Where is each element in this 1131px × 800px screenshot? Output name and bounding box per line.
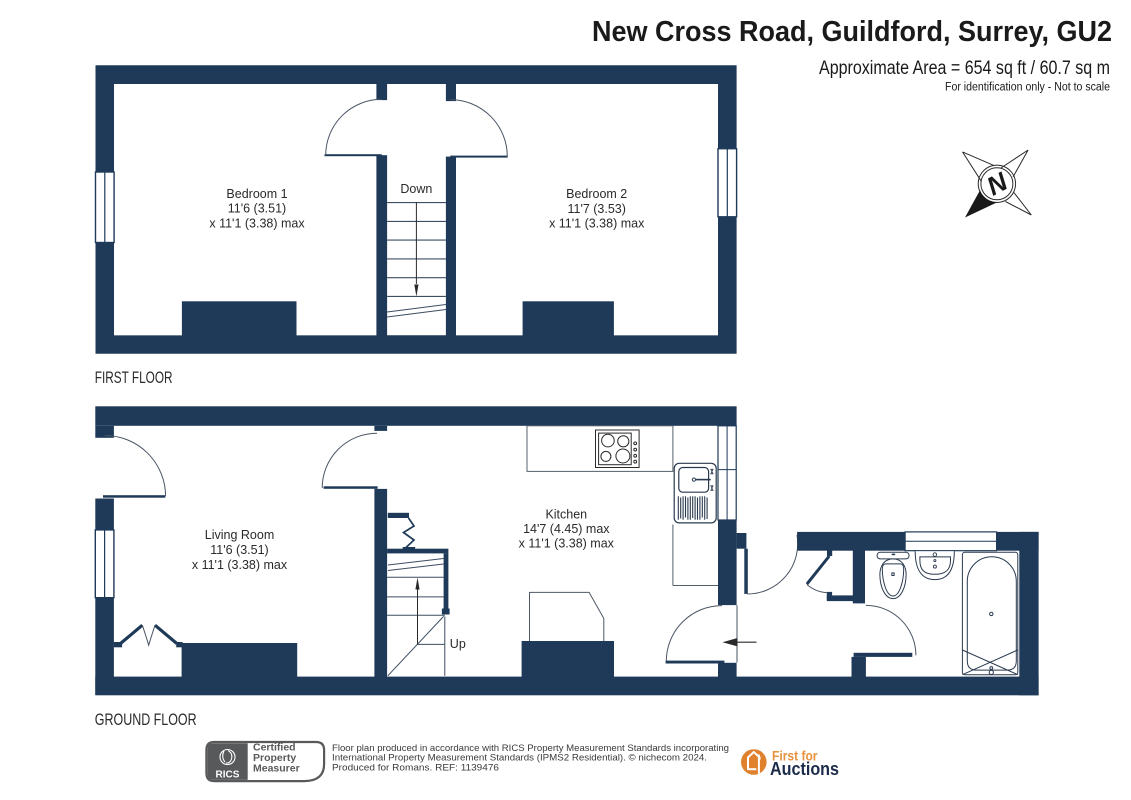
svg-text:x 11'1 (3.38) max: x 11'1 (3.38) max	[519, 537, 615, 551]
svg-text:RICS: RICS	[216, 770, 240, 781]
svg-text:Living Room: Living Room	[205, 528, 274, 542]
svg-text:Down: Down	[400, 182, 432, 196]
svg-text:Auctions: Auctions	[770, 758, 839, 779]
svg-text:New Cross Road, Guildford, Sur: New Cross Road, Guildford, Surrey, GU2	[592, 16, 1112, 48]
svg-text:FIRST FLOOR: FIRST FLOOR	[95, 368, 173, 387]
svg-text:Kitchen: Kitchen	[545, 507, 587, 521]
svg-text:11'7 (3.53): 11'7 (3.53)	[567, 202, 625, 216]
svg-text:GROUND FLOOR: GROUND FLOOR	[95, 710, 197, 729]
svg-text:x 11'1 (3.38) max: x 11'1 (3.38) max	[192, 558, 288, 572]
svg-text:Up: Up	[450, 637, 466, 651]
svg-text:International Property Measure: International Property Measurement Stand…	[332, 753, 707, 763]
svg-text:Approximate Area = 654 sq ft /: Approximate Area = 654 sq ft / 60.7 sq m	[819, 58, 1110, 79]
svg-text:For identification only - Not: For identification only - Not to scale	[945, 82, 1110, 94]
svg-text:Floor plan produced in accorda: Floor plan produced in accordance with R…	[332, 743, 729, 753]
svg-text:Measurer: Measurer	[253, 763, 300, 775]
svg-text:11'6 (3.51): 11'6 (3.51)	[210, 543, 268, 557]
svg-text:Produced for Romans. REF: 11: Produced for Romans. REF: 1139476	[332, 763, 499, 773]
svg-text:11'6 (3.51): 11'6 (3.51)	[228, 202, 286, 216]
svg-text:14'7 (4.45) max: 14'7 (4.45) max	[523, 522, 610, 536]
svg-text:Bedroom 1: Bedroom 1	[226, 187, 287, 201]
svg-text:x 11'1 (3.38) max: x 11'1 (3.38) max	[549, 217, 645, 231]
svg-text:x 11'1 (3.38) max: x 11'1 (3.38) max	[209, 216, 305, 230]
svg-text:Bedroom 2: Bedroom 2	[566, 187, 627, 201]
